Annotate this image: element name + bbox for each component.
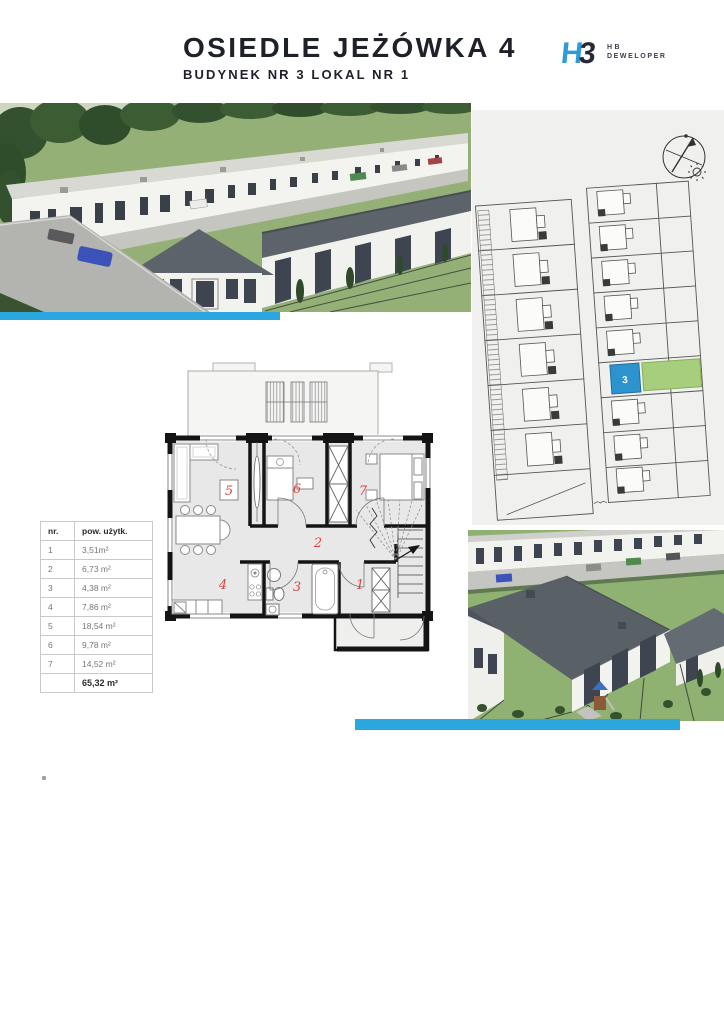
room-label-7: 7: [359, 484, 368, 499]
cell-area: 6,73 m²: [75, 560, 153, 579]
table-row: 4 7,86 m²: [41, 598, 153, 617]
brand-logo: H 3 HB DEWELOPER: [560, 36, 667, 68]
room-label-2: 2: [313, 536, 322, 551]
cell-nr: 1: [41, 541, 75, 560]
col-header-nr: nr.: [41, 522, 75, 541]
area-table: nr. pow. użytk. 1 3,51m² 2 6,73 m² 3 4,3…: [40, 521, 153, 693]
cell-nr-empty: [41, 674, 75, 693]
cell-nr: 4: [41, 598, 75, 617]
table-row: 7 14,52 m²: [41, 655, 153, 674]
logo-mark-icon: H 3: [560, 36, 600, 68]
room-label-5: 5: [225, 484, 233, 499]
room-label-1: 1: [356, 578, 364, 593]
header: OSIEDLE JEŻÓWKA 4 BUDYNEK NR 3 LOKAL NR …: [183, 33, 517, 82]
cell-area: 7,86 m²: [75, 598, 153, 617]
room-label-6: 6: [293, 482, 301, 497]
page-subtitle: BUDYNEK NR 3 LOKAL NR 1: [183, 67, 517, 82]
sun-glyph: [688, 163, 706, 181]
room-label-3: 3: [293, 580, 301, 595]
site-plan-panel: 3: [472, 110, 724, 525]
car-blue: [496, 573, 513, 582]
table-row: 6 9,78 m²: [41, 636, 153, 655]
unit-garden: [642, 359, 702, 391]
cell-area: 14,52 m²: [75, 655, 153, 674]
total-area: 65,32 m²: [75, 674, 153, 693]
terrace: [188, 363, 392, 437]
aerial-render-top: [0, 103, 471, 312]
accent-bar-top: [0, 312, 280, 320]
cell-area: 3,51m²: [75, 541, 153, 560]
washbasin-icon: [268, 569, 281, 582]
table-header-row: nr. pow. użytk.: [41, 522, 153, 541]
brand-name-line2: DEWELOPER: [607, 53, 667, 60]
brand-name-line1: HB: [607, 44, 667, 51]
cell-nr: 6: [41, 636, 75, 655]
cell-nr: 7: [41, 655, 75, 674]
car-gray: [586, 563, 601, 571]
table-total-row: 65,32 m²: [41, 674, 153, 693]
cell-area: 18,54 m²: [75, 617, 153, 636]
cell-nr: 5: [41, 617, 75, 636]
table-row: 1 3,51m²: [41, 541, 153, 560]
cell-nr: 3: [41, 579, 75, 598]
accent-bar-bottom: [355, 719, 680, 730]
brochure-page: OSIEDLE JEŻÓWKA 4 BUDYNEK NR 3 LOKAL NR …: [0, 0, 724, 1024]
logo-letter-b: 3: [577, 37, 597, 68]
site-plan: 3: [472, 110, 724, 525]
page-title: OSIEDLE JEŻÓWKA 4: [183, 33, 517, 62]
floor-plan: 1 2 3 4 5 6 7: [160, 358, 440, 660]
table-row: 2 6,73 m²: [41, 560, 153, 579]
entry-porch: [335, 616, 428, 650]
room-label-4: 4: [218, 578, 227, 593]
car-dark: [666, 553, 680, 561]
closeup-render-bottom: [468, 530, 724, 721]
col-header-area: pow. użytk.: [75, 522, 153, 541]
planters: [266, 382, 327, 422]
scan-artifact: [42, 776, 46, 780]
brand-text: HB DEWELOPER: [607, 44, 667, 60]
cell-area: 9,78 m²: [75, 636, 153, 655]
cell-area: 4,38 m²: [75, 579, 153, 598]
compass-icon: [663, 134, 706, 181]
table-row: 5 18,54 m²: [41, 617, 153, 636]
cell-nr: 2: [41, 560, 75, 579]
table-row: 3 4,38 m²: [41, 579, 153, 598]
car-green: [626, 557, 641, 565]
